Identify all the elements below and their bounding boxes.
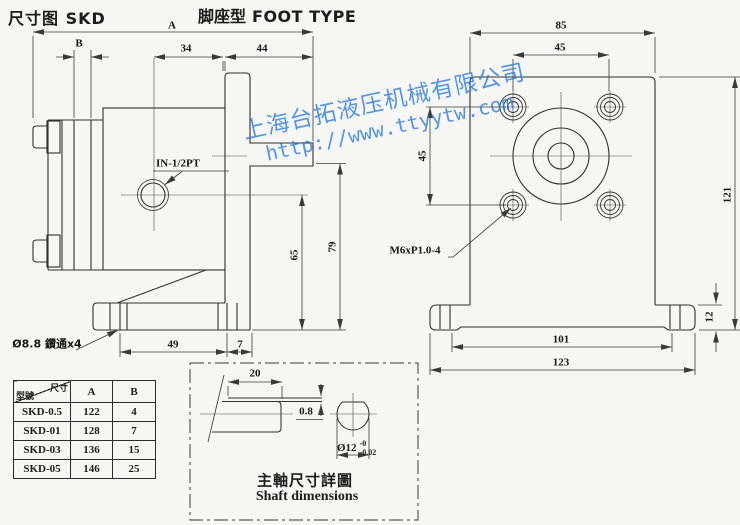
dim-d12-tol-upper: -0 [360,439,377,448]
dim-34: 34 [181,44,192,55]
dim-49: 49 [168,340,179,351]
table-row: SKD-05 146 25 [14,460,156,479]
dim-79: 79 [328,242,339,253]
dim-45-top: 45 [555,43,566,54]
model-cell: SKD-01 [14,422,71,441]
front-view-dimensions [426,33,740,375]
model-cell: SKD-03 [14,441,71,460]
dim-20: 20 [250,369,261,380]
detail-caption-en: Shaft dimensions [256,489,358,505]
drawing-type-title: 脚座型 FOOT TYPE [198,3,356,27]
drawing-type-en: FOOT TYPE [252,7,356,26]
b-cell: 4 [113,403,156,422]
dim-shaft-diameter: Ø12 -0 -0.02 [337,439,376,457]
side-view-outline [33,73,313,330]
model-dimension-table: 尺寸 型號 A B SKD-0.5 122 4 SKD-01 128 7 SKD… [13,380,156,479]
dim-121: 121 [723,187,734,204]
dim-B: B [75,39,82,50]
corner-label-size: 尺寸 [50,381,68,394]
foot-holes-label: Ø8.8 鑽通x4 [12,339,81,350]
sheet-title: 尺寸图 SKD [8,5,106,29]
dim-d12-tol-lower: -0.02 [360,448,377,457]
front-view-outline [430,77,695,330]
b-cell: 25 [113,460,156,479]
dim-123: 123 [553,358,570,369]
dim-45-left: 45 [418,151,429,162]
dim-44: 44 [257,44,268,55]
inlet-port-label: IN-1/2PT [156,159,200,170]
a-cell: 146 [71,460,113,479]
col-header-a: A [71,381,113,403]
corner-label-model: 型號 [16,389,34,402]
dim-d12-value: Ø12 [337,442,357,454]
table-corner-cell: 尺寸 型號 [14,381,71,403]
col-header-b: B [113,381,156,403]
table-row: SKD-0.5 122 4 [14,403,156,422]
table-row: SKD-03 136 15 [14,441,156,460]
a-cell: 122 [71,403,113,422]
dim-65: 65 [290,250,301,261]
drawing-type-cn: 脚座型 [198,3,246,27]
dim-A: A [168,21,176,32]
dim-12: 12 [705,312,716,323]
b-cell: 15 [113,441,156,460]
b-cell: 7 [113,422,156,441]
dim-101: 101 [553,335,570,346]
dim-7: 7 [237,340,243,351]
model-cell: SKD-05 [14,460,71,479]
table-header-row: 尺寸 型號 A B [14,381,156,403]
a-cell: 128 [71,422,113,441]
side-view-centerlines [121,58,308,231]
dim-0-8: 0.8 [299,407,313,418]
detail-caption-cn: 主軸尺寸詳圖 [257,470,353,491]
front-view-centerlines [490,91,632,221]
model-cell: SKD-0.5 [14,403,71,422]
mounting-thread-label: M6xP1.0-4 [389,246,440,257]
a-cell: 136 [71,441,113,460]
dim-85: 85 [556,21,567,32]
technical-drawing-sheet: 尺寸图 SKD 脚座型 FOOT TYPE 上海台拓液压机械有限公司 http:… [0,0,740,525]
table-row: SKD-01 128 7 [14,422,156,441]
side-view-dimensions [33,32,346,357]
